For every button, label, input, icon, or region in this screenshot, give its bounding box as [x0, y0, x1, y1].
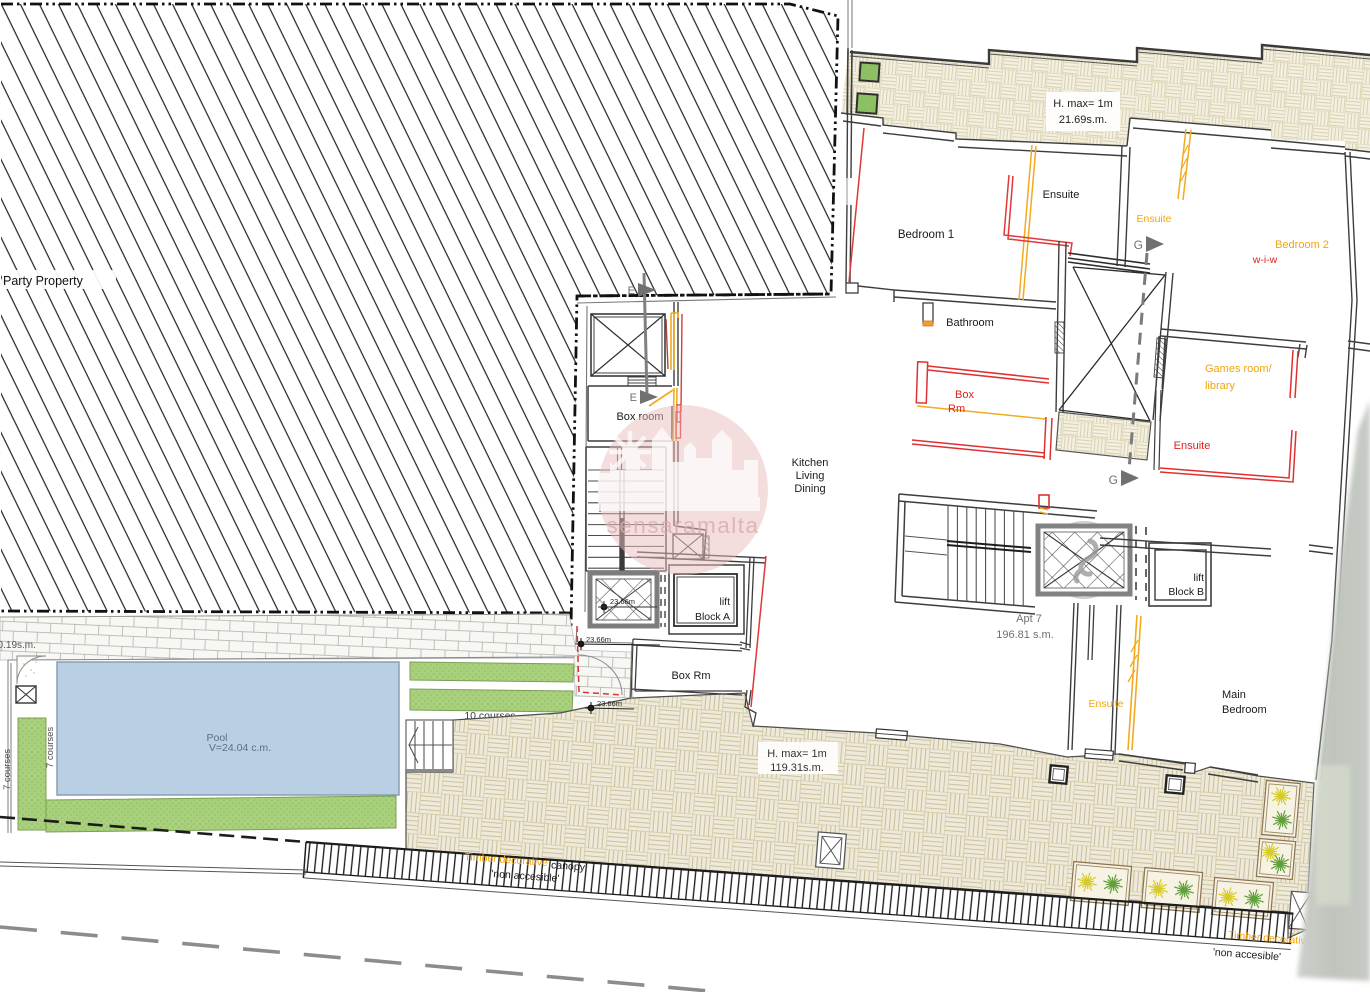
svg-text:70.19s.m.: 70.19s.m. — [0, 640, 36, 651]
svg-text:sensaramalta: sensaramalta — [606, 513, 759, 538]
svg-text:G: G — [1109, 473, 1118, 487]
svg-text:Bedroom: Bedroom — [1222, 704, 1267, 716]
svg-text:lift: lift — [1194, 572, 1205, 584]
svg-text:23.66m: 23.66m — [610, 597, 635, 606]
svg-text:V=24.04 c.m.: V=24.04 c.m. — [209, 742, 271, 754]
svg-text:E: E — [630, 392, 637, 404]
svg-text:Ensuite: Ensuite — [1088, 698, 1123, 710]
svg-text:Rm: Rm — [948, 403, 965, 415]
svg-text:119.31s.m.: 119.31s.m. — [770, 762, 824, 774]
svg-text:Living: Living — [796, 470, 825, 482]
svg-text:7 courses: 7 courses — [45, 727, 56, 768]
svg-text:H. max= 1m: H. max= 1m — [767, 748, 827, 760]
svg-text:G: G — [1134, 238, 1143, 252]
svg-text:Kitchen: Kitchen — [792, 457, 829, 469]
svg-text:Block B: Block B — [1168, 586, 1204, 598]
svg-text:E: E — [628, 285, 635, 297]
svg-text:library: library — [1205, 380, 1235, 392]
svg-text:Ensuite: Ensuite — [1043, 189, 1080, 201]
svg-text:23.66m: 23.66m — [586, 635, 611, 644]
svg-text:23.66m: 23.66m — [597, 699, 622, 708]
svg-text:Main: Main — [1222, 689, 1246, 701]
svg-text:H. max= 1m: H. max= 1m — [1053, 98, 1113, 110]
svg-text:Box: Box — [955, 389, 974, 401]
svg-text:7 courses: 7 courses — [2, 749, 13, 790]
svg-text:21.69s.m.: 21.69s.m. — [1059, 114, 1107, 126]
svg-text:Block A: Block A — [695, 611, 730, 623]
svg-text:196.81 s.m.: 196.81 s.m. — [996, 629, 1053, 641]
svg-text:Party Property: Party Property — [3, 274, 84, 288]
svg-text:Ensuite: Ensuite — [1136, 213, 1171, 225]
svg-text:Bedroom 2: Bedroom 2 — [1275, 239, 1329, 251]
svg-text:w-i-w: w-i-w — [1252, 254, 1278, 266]
svg-text:Bedroom 1: Bedroom 1 — [898, 229, 954, 241]
svg-text:canopy: canopy — [551, 859, 586, 873]
svg-text:Apt 7: Apt 7 — [1016, 613, 1042, 625]
svg-text:Ensuite: Ensuite — [1174, 440, 1211, 452]
svg-text:Bathroom: Bathroom — [946, 317, 994, 329]
svg-text:Box Rm: Box Rm — [671, 670, 710, 682]
svg-text:Dining: Dining — [794, 483, 825, 495]
svg-text:lift: lift — [720, 596, 731, 608]
svg-text:Games room/: Games room/ — [1205, 363, 1273, 375]
